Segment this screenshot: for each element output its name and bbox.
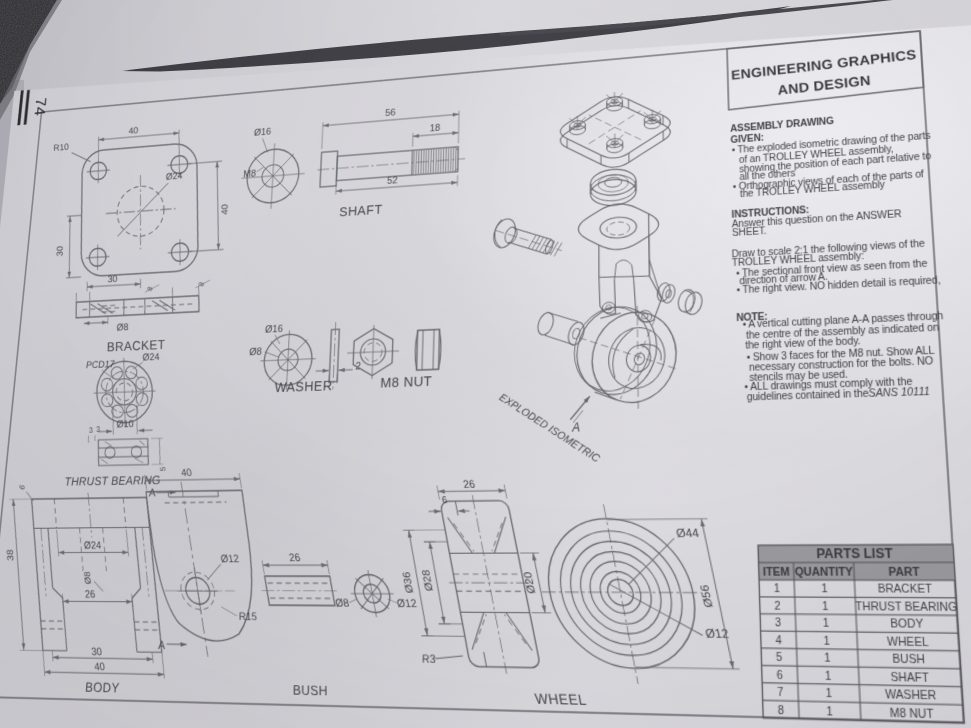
svg-text:SHEET.: SHEET. [732, 225, 767, 239]
svg-text:52: 52 [387, 174, 398, 186]
svg-text:SHAFT: SHAFT [339, 203, 383, 220]
svg-text:M8: M8 [243, 167, 257, 179]
svg-text:guidelines contained in the: guidelines contained in the [747, 387, 869, 403]
svg-text:BUSH: BUSH [292, 683, 330, 699]
svg-text:Ø28: Ø28 [420, 569, 435, 591]
svg-text:26: 26 [288, 552, 302, 564]
svg-text:8: 8 [777, 703, 784, 717]
svg-text:1: 1 [824, 652, 831, 666]
svg-text:WASHER: WASHER [885, 688, 937, 703]
svg-text:Ø44: Ø44 [675, 526, 701, 540]
svg-text:Ø16: Ø16 [265, 322, 284, 335]
svg-text:38: 38 [5, 549, 16, 561]
svg-text:BRACKET: BRACKET [878, 583, 933, 597]
svg-text:40: 40 [129, 126, 139, 137]
svg-text:1: 1 [774, 582, 781, 595]
svg-text:WHEEL: WHEEL [534, 692, 588, 709]
svg-text:BUSH: BUSH [892, 653, 925, 667]
svg-text:ASSEMBLY DRAWING: ASSEMBLY DRAWING [730, 115, 834, 134]
svg-text:Ø56: Ø56 [698, 584, 716, 607]
svg-text:Ø16: Ø16 [254, 125, 272, 138]
svg-text:SANS 10111: SANS 10111 [868, 385, 930, 399]
svg-text:1: 1 [825, 687, 832, 701]
svg-text:Ø12: Ø12 [396, 597, 419, 610]
svg-text:Ø8: Ø8 [82, 571, 93, 584]
svg-text:26: 26 [462, 478, 476, 490]
svg-text:A: A [147, 486, 157, 499]
svg-text:3: 3 [89, 427, 93, 436]
svg-text:ITEM: ITEM [763, 566, 791, 579]
svg-text:30: 30 [108, 274, 118, 285]
svg-text:SHAFT: SHAFT [890, 670, 929, 684]
svg-text:30: 30 [55, 245, 64, 256]
svg-text:A: A [156, 638, 166, 652]
svg-text:M8 NUT: M8 NUT [890, 706, 935, 721]
svg-text:PART: PART [888, 565, 920, 578]
svg-text:30: 30 [91, 646, 103, 658]
svg-text:74: 74 [31, 97, 49, 116]
svg-text:Ø8: Ø8 [117, 322, 129, 333]
svg-text:R15: R15 [238, 611, 258, 623]
svg-text:Ø24: Ø24 [83, 540, 102, 552]
svg-text:1: 1 [822, 600, 829, 613]
svg-text:QUANTITY: QUANTITY [795, 566, 855, 579]
svg-text:6: 6 [441, 494, 448, 506]
svg-text:Ø24: Ø24 [166, 171, 183, 182]
svg-text:56: 56 [385, 106, 396, 118]
svg-text:BODY: BODY [85, 681, 122, 697]
svg-text:WHEEL: WHEEL [887, 635, 930, 649]
svg-text:M8 NUT: M8 NUT [380, 374, 432, 391]
svg-text:WASHER: WASHER [274, 379, 333, 396]
svg-text:PARTS LIST: PARTS LIST [816, 547, 893, 562]
svg-text:40: 40 [180, 467, 193, 479]
svg-text:3: 3 [775, 616, 782, 629]
svg-text:3: 3 [96, 426, 100, 435]
svg-text:40: 40 [94, 661, 106, 673]
svg-text:6: 6 [19, 484, 27, 491]
svg-text:6: 6 [776, 668, 783, 682]
svg-text:7: 7 [777, 686, 784, 700]
svg-text:Ø12: Ø12 [220, 553, 241, 565]
svg-text:1: 1 [825, 669, 832, 683]
svg-text:THRUST BEARING: THRUST BEARING [855, 600, 957, 614]
svg-text:Ø8: Ø8 [334, 597, 350, 609]
svg-text:Ø10: Ø10 [116, 418, 134, 429]
svg-text:1: 1 [822, 617, 829, 630]
svg-text:40: 40 [220, 203, 230, 215]
svg-text:26: 26 [84, 589, 96, 601]
svg-text:Ø8: Ø8 [249, 345, 263, 358]
svg-text:Ø24: Ø24 [142, 352, 160, 363]
svg-text:EXPLODED ISOMETRIC: EXPLODED ISOMETRIC [497, 391, 602, 465]
svg-text:5: 5 [160, 466, 168, 471]
svg-text:R3: R3 [421, 653, 437, 666]
svg-text:R10: R10 [53, 142, 69, 153]
svg-text:5: 5 [776, 651, 783, 664]
svg-text:4: 4 [775, 634, 783, 647]
svg-text:1: 1 [823, 634, 830, 647]
svg-text:Ø36: Ø36 [401, 571, 416, 593]
svg-text:Ø20: Ø20 [522, 571, 538, 593]
svg-text:PCD17: PCD17 [86, 359, 115, 371]
svg-text:1: 1 [821, 583, 828, 596]
svg-text:2: 2 [774, 599, 781, 612]
svg-text:A: A [571, 421, 580, 434]
svg-text:BODY: BODY [890, 617, 924, 631]
svg-text:1: 1 [826, 704, 833, 718]
svg-text:18: 18 [429, 121, 440, 133]
